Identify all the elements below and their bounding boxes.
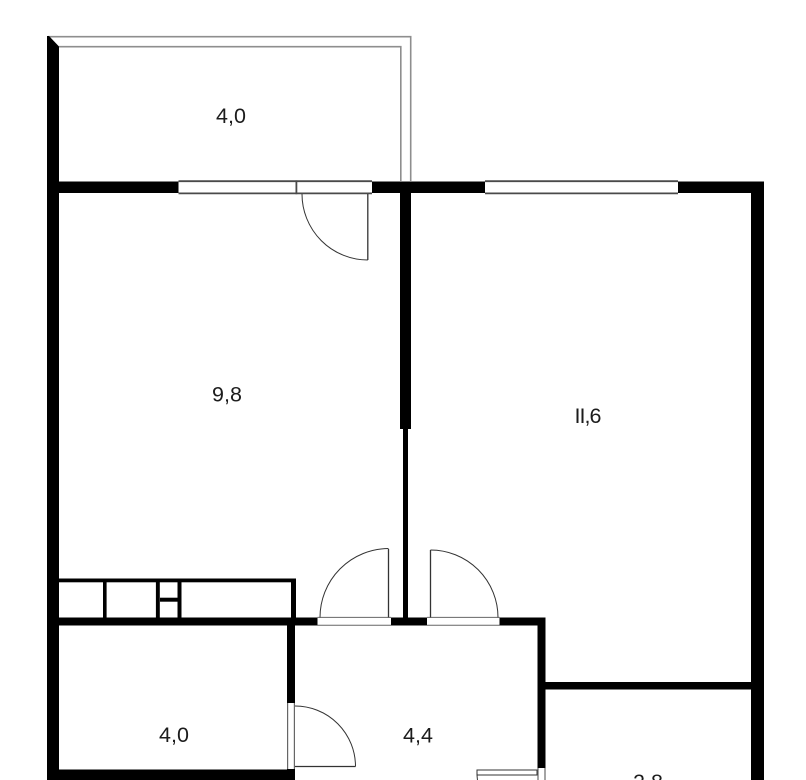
svg-text:2,8: 2,8 [633,770,663,780]
svg-text:9,8: 9,8 [212,383,242,407]
svg-text:II,6: II,6 [575,404,602,428]
svg-text:4,0: 4,0 [159,723,189,747]
svg-text:4,0: 4,0 [216,104,246,128]
svg-text:4,4: 4,4 [403,724,433,748]
